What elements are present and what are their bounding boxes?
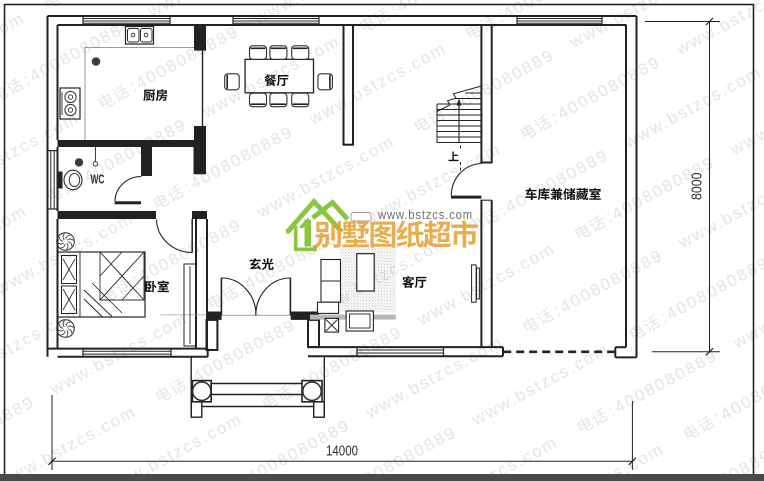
svg-text:8000: 8000 xyxy=(690,173,706,201)
svg-text:14000: 14000 xyxy=(326,444,358,460)
svg-text:WC: WC xyxy=(91,172,105,186)
svg-text:www.bstzcs.com: www.bstzcs.com xyxy=(377,207,473,222)
